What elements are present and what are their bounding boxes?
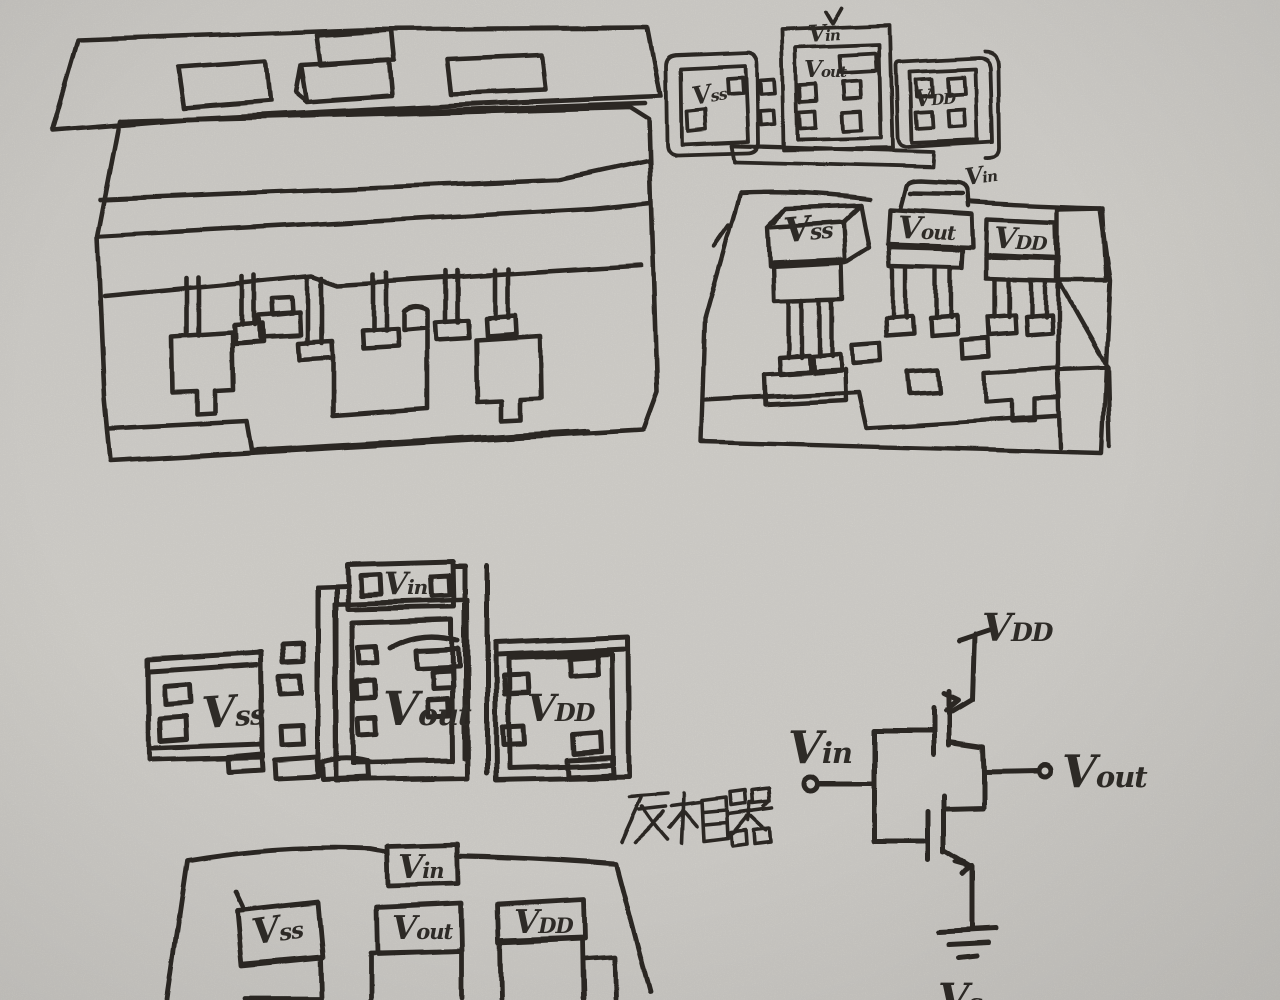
label-package-bottom-vout: Vout bbox=[392, 912, 452, 945]
label-schematic-vout: Vout bbox=[1062, 750, 1147, 795]
label-schematic-vdd: VDD bbox=[982, 610, 1052, 649]
label-layout-small-vdd: VDD bbox=[913, 84, 956, 111]
label-layout-large-vss: Vss bbox=[201, 688, 266, 736]
ink-drawing bbox=[0, 0, 1280, 1000]
label-layout-small-vout: Vout bbox=[804, 58, 846, 81]
label-layout-large-vdd: VDD bbox=[527, 690, 594, 727]
label-package-bottom-vss: Vss bbox=[250, 909, 305, 951]
label-package-right-vout: Vout bbox=[897, 213, 955, 246]
label-schematic-vin: Vin bbox=[788, 726, 852, 771]
label-layout-large-vin: Vin bbox=[384, 569, 427, 600]
label-schematic-vss-partial: Vs bbox=[938, 978, 982, 1000]
label-layout-small-vin: Vin bbox=[807, 21, 840, 46]
annotation-text: 反相器 bbox=[612, 786, 792, 848]
label-package-right-vdd: VDD bbox=[993, 223, 1047, 255]
label-package-right-vss: Vss bbox=[782, 210, 834, 249]
paper-grain bbox=[0, 0, 1280, 1000]
scanned-sketch-page: Vin Vss Vout VDD Vin Vss Vout VDD Vin Vs… bbox=[0, 0, 1280, 1000]
label-layout-large-vout: Vout bbox=[383, 686, 471, 733]
label-package-bottom-vdd: VDD bbox=[514, 906, 573, 939]
label-package-bottom-vin: Vin bbox=[398, 851, 444, 884]
label-package-right-vin: Vin bbox=[964, 162, 999, 189]
